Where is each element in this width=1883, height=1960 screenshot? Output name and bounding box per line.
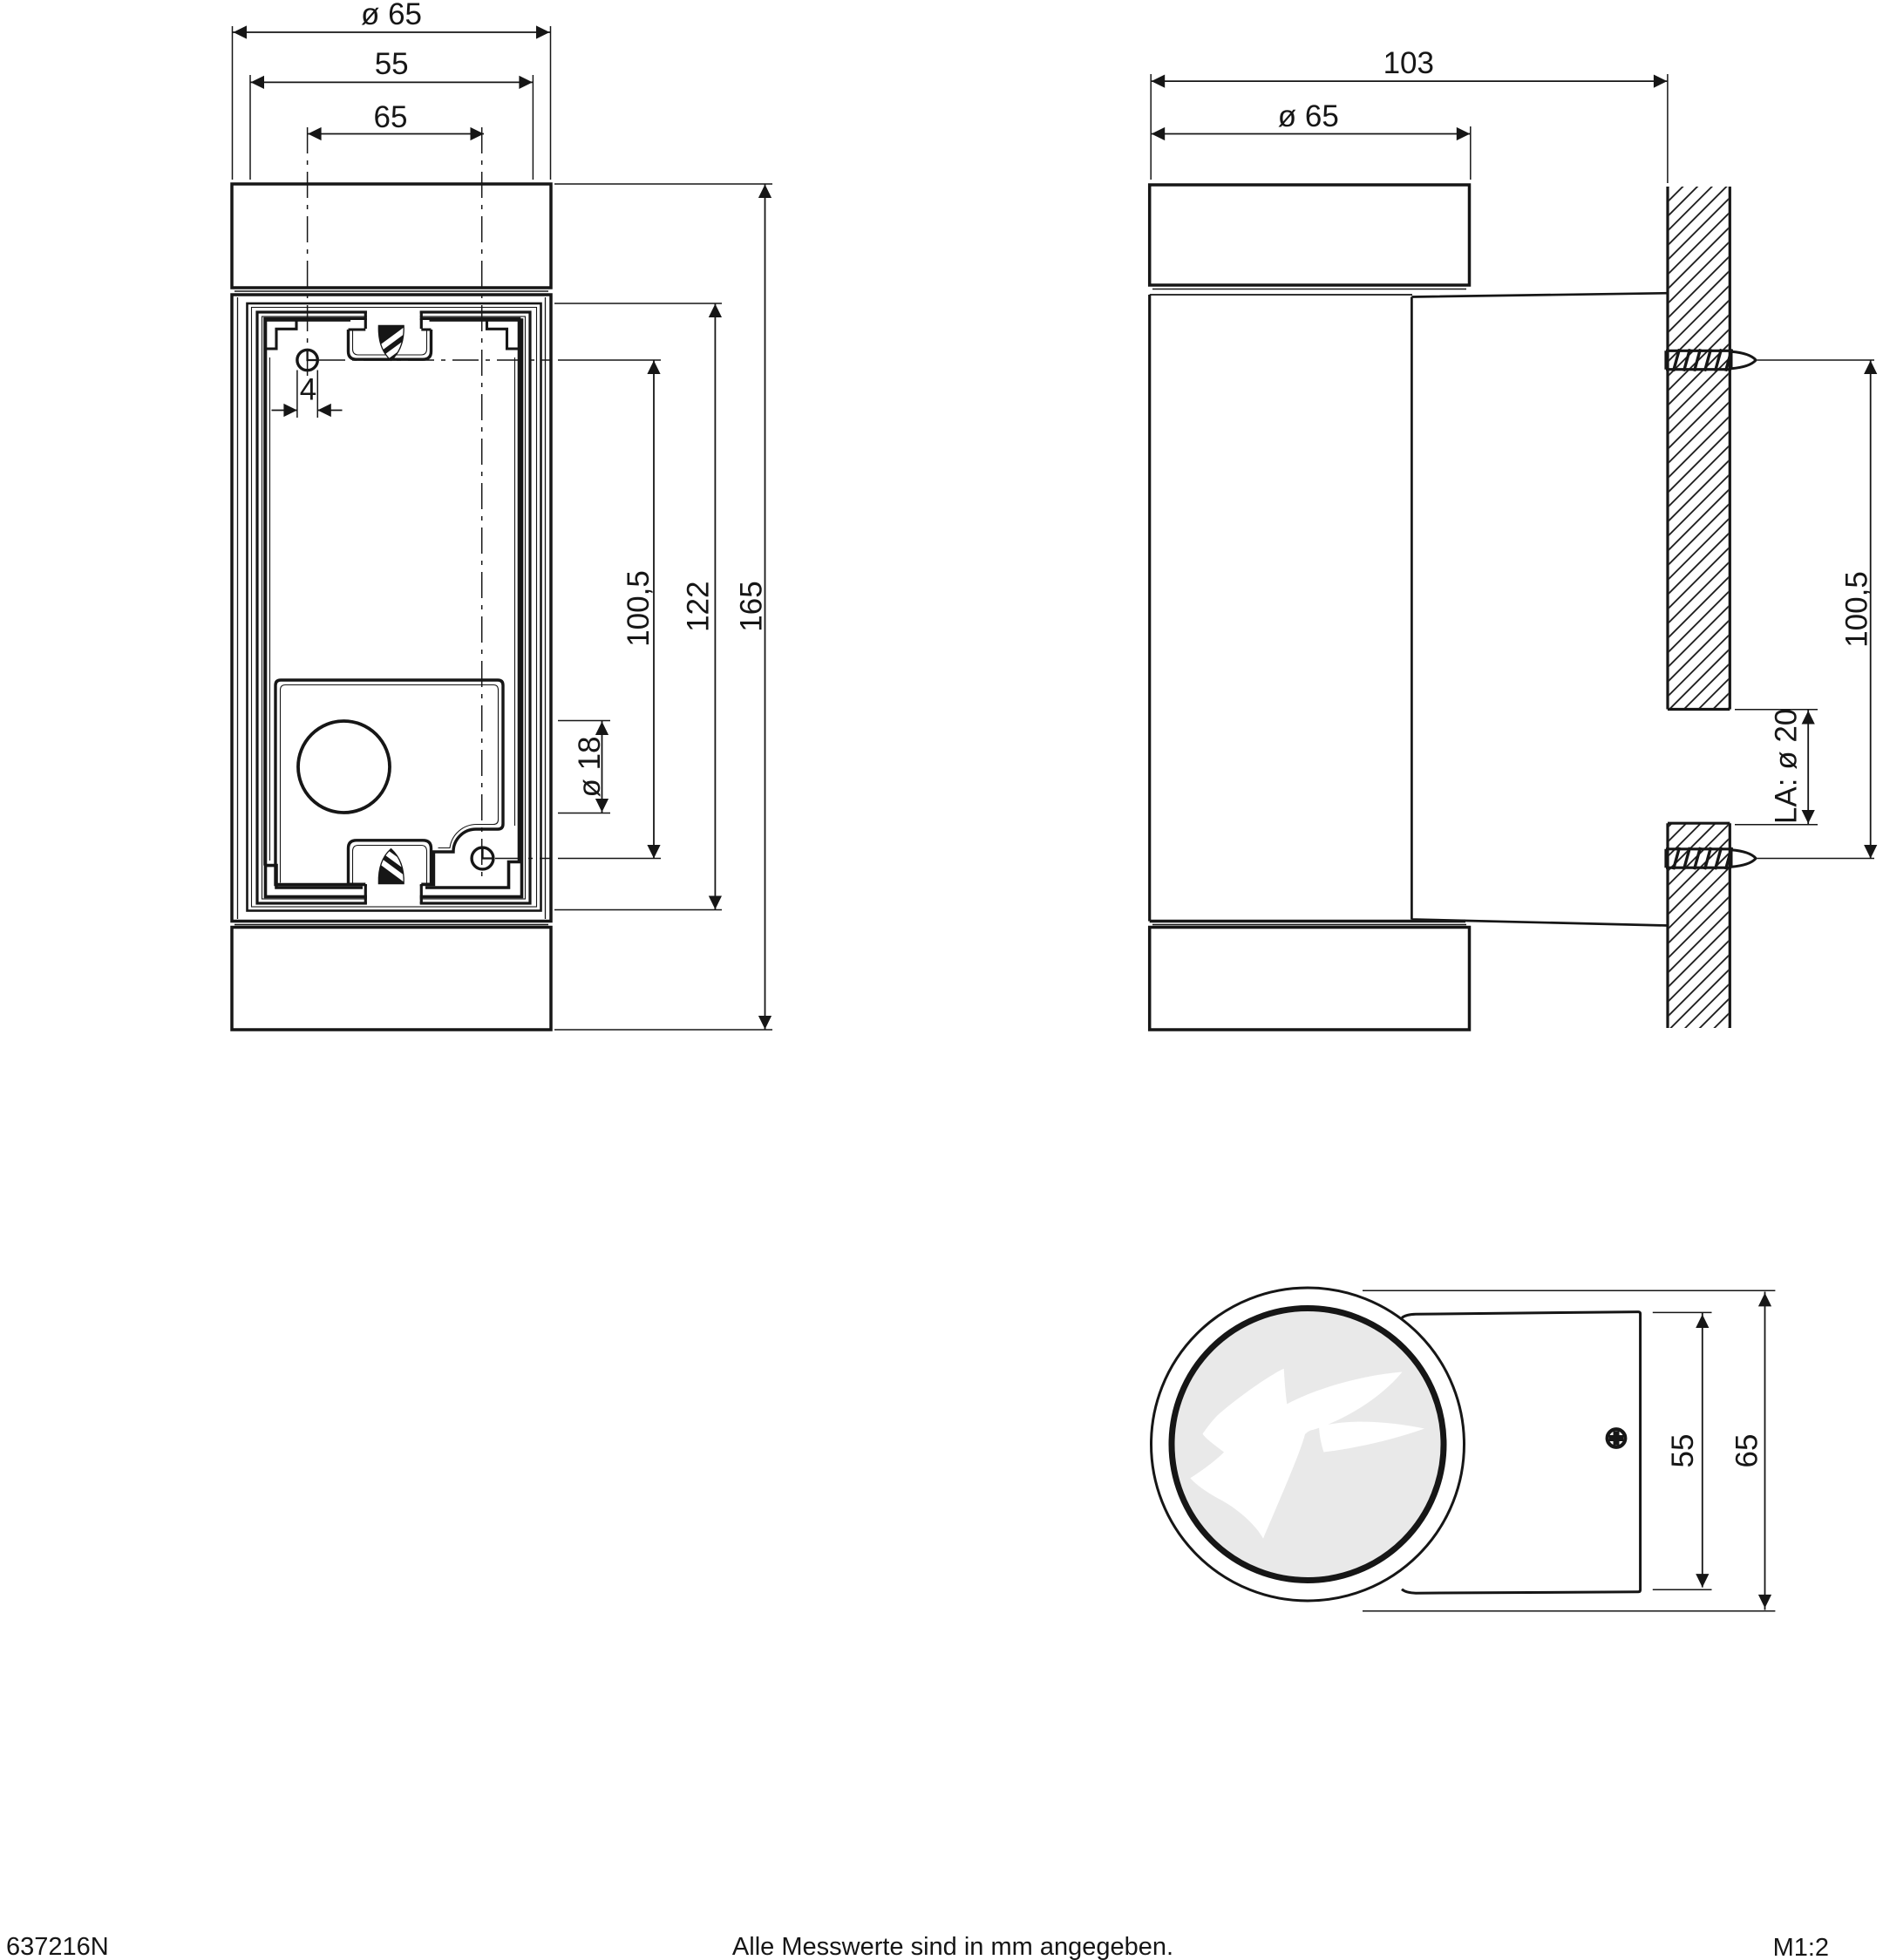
- svg-text:Alle Messwerte sind in mm ange: Alle Messwerte sind in mm angegeben.: [732, 1933, 1173, 1960]
- svg-text:M1:2: M1:2: [1773, 1934, 1829, 1960]
- svg-text:4: 4: [300, 373, 316, 407]
- svg-text:100,5: 100,5: [622, 570, 656, 647]
- svg-text:55: 55: [1666, 1434, 1700, 1468]
- svg-text:ø 65: ø 65: [1278, 99, 1339, 133]
- svg-text:ø 65: ø 65: [361, 0, 422, 31]
- svg-text:103: 103: [1383, 46, 1434, 80]
- svg-text:100,5: 100,5: [1840, 571, 1874, 648]
- svg-text:122: 122: [682, 581, 716, 631]
- svg-text:65: 65: [1730, 1434, 1764, 1468]
- svg-text:65: 65: [374, 100, 408, 134]
- svg-text:LA: ø 20: LA: ø 20: [1769, 709, 1803, 824]
- svg-text:55: 55: [375, 47, 409, 81]
- svg-text:165: 165: [735, 581, 769, 631]
- svg-text:637216N: 637216N: [6, 1933, 109, 1960]
- svg-text:ø 18: ø 18: [573, 736, 607, 797]
